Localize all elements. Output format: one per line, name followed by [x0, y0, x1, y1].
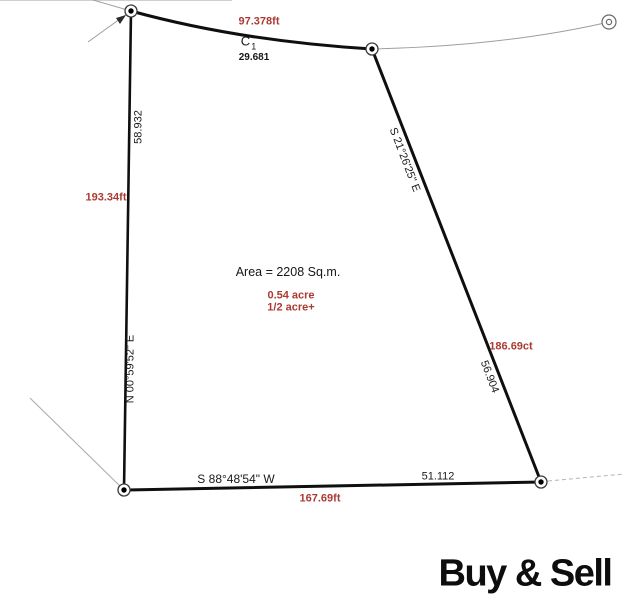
reference-line-bottomleft	[30, 398, 124, 490]
survey-plot: 97.378ft C1 29.681 58.932 193.34ft N 00°…	[0, 0, 624, 600]
curve-subscript: 1	[251, 41, 257, 51]
corner-marker-bottomright	[535, 476, 547, 488]
left-length-ft-label: 193.34ft	[86, 193, 127, 204]
area-half-acre-label: 1/2 acre+	[267, 303, 314, 314]
reference-line-bottomright	[548, 474, 624, 481]
open-circle-marker	[602, 15, 616, 29]
right-length-ft-label: 186.69ct	[489, 342, 532, 353]
corner-marker-topleft	[125, 5, 137, 17]
area-acre-label: 0.54 acre	[267, 291, 314, 302]
buy-and-sell-logo: Buy & Sell	[439, 553, 612, 596]
corner-marker-topright	[366, 43, 378, 55]
curve-name-label: C1	[241, 35, 257, 52]
left-length-label: 58.932	[134, 110, 145, 144]
curve-letter: C	[241, 34, 251, 49]
top-length-label: 97.378ft	[239, 17, 280, 28]
area-label: Area = 2208 Sq.m.	[236, 266, 341, 279]
curve-length-label: 29.681	[239, 53, 270, 63]
bottom-length-label: 51.112	[422, 472, 455, 483]
corner-marker-bottomleft	[118, 484, 130, 496]
left-bearing-label: N 00°59'52" E	[126, 335, 137, 404]
bottom-length-ft-label: 167.69ft	[300, 494, 341, 505]
arrowhead-icon	[116, 15, 126, 24]
curve-extension-line	[372, 22, 609, 49]
boundary-bottom-edge	[124, 482, 541, 490]
bottom-bearing-label: S 88°48'54" W	[197, 473, 274, 485]
boundary-right-edge	[372, 49, 541, 482]
boundary-left-edge	[124, 11, 131, 490]
